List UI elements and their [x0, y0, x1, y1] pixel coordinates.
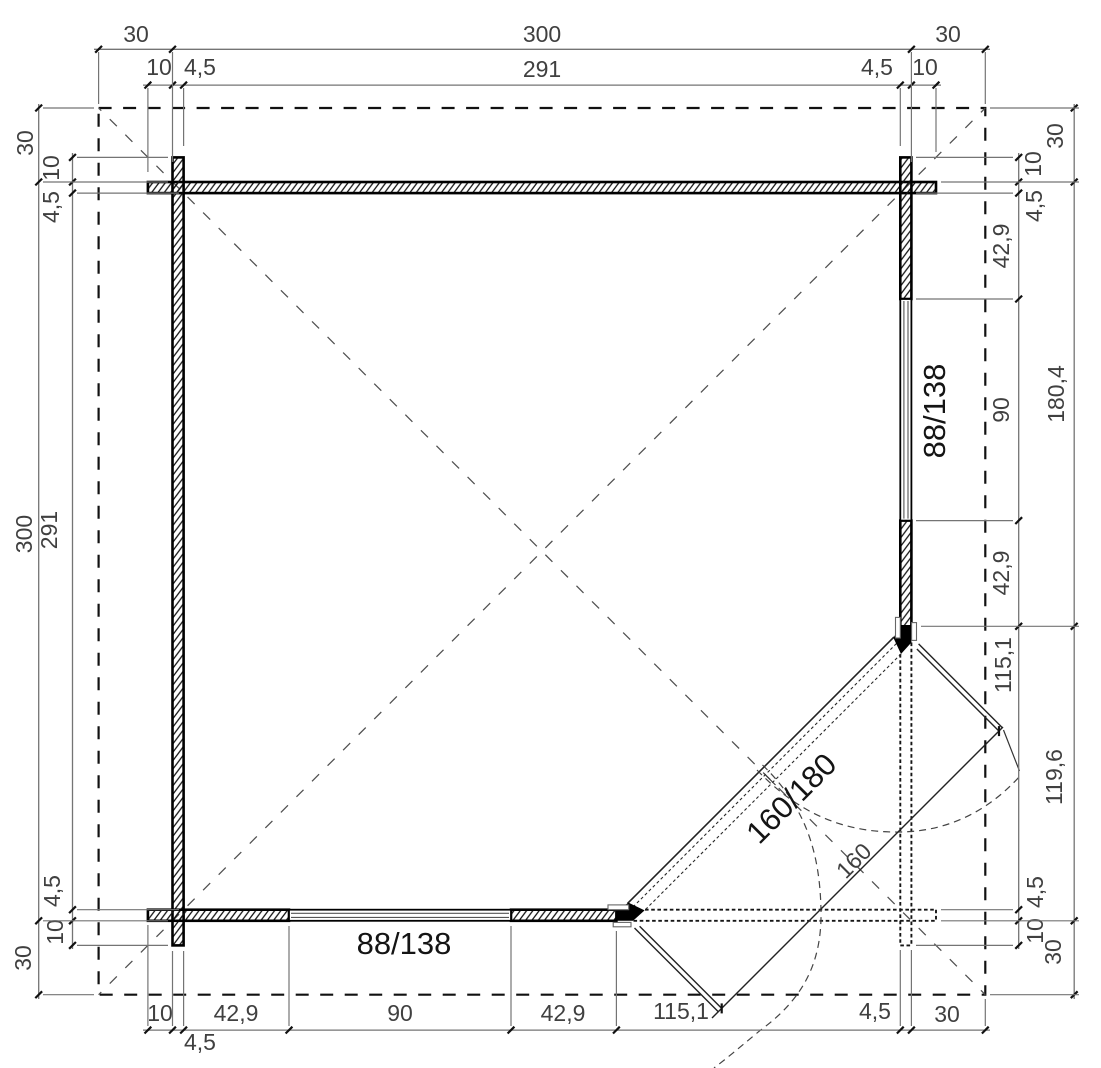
svg-text:4,5: 4,5 — [1021, 190, 1047, 222]
svg-text:300: 300 — [523, 21, 561, 47]
svg-text:119,6: 119,6 — [1041, 749, 1067, 805]
svg-text:30: 30 — [1042, 123, 1068, 149]
svg-text:4,5: 4,5 — [38, 191, 64, 223]
svg-text:10: 10 — [38, 155, 64, 181]
svg-text:90: 90 — [387, 1000, 413, 1026]
svg-text:300: 300 — [11, 515, 37, 553]
svg-text:10: 10 — [146, 54, 172, 80]
svg-text:4,5: 4,5 — [859, 998, 891, 1024]
svg-text:10: 10 — [42, 919, 68, 945]
svg-text:30: 30 — [12, 130, 38, 156]
svg-text:30: 30 — [935, 21, 961, 47]
svg-text:88/138: 88/138 — [357, 926, 452, 961]
svg-text:90: 90 — [988, 397, 1014, 423]
svg-text:115,1: 115,1 — [990, 637, 1016, 693]
svg-text:10: 10 — [1020, 151, 1046, 177]
svg-text:4,5: 4,5 — [184, 1029, 216, 1055]
svg-text:30: 30 — [1040, 939, 1066, 965]
svg-text:42,9: 42,9 — [541, 1000, 586, 1026]
svg-text:30: 30 — [10, 945, 36, 971]
svg-text:115,1: 115,1 — [653, 998, 709, 1024]
svg-text:30: 30 — [934, 1001, 960, 1027]
svg-text:10: 10 — [912, 54, 938, 80]
svg-text:42,9: 42,9 — [988, 551, 1014, 596]
svg-text:4,5: 4,5 — [39, 875, 65, 907]
svg-text:180,4: 180,4 — [1043, 365, 1069, 423]
svg-text:4,5: 4,5 — [1022, 876, 1048, 908]
svg-text:10: 10 — [147, 1000, 173, 1026]
svg-text:291: 291 — [523, 56, 561, 82]
svg-text:4,5: 4,5 — [861, 54, 893, 80]
svg-text:4,5: 4,5 — [184, 54, 216, 80]
svg-text:291: 291 — [36, 511, 62, 549]
svg-text:42,9: 42,9 — [214, 1000, 259, 1026]
svg-text:88/138: 88/138 — [917, 364, 952, 459]
svg-text:42,9: 42,9 — [988, 224, 1014, 269]
svg-text:30: 30 — [123, 21, 149, 47]
